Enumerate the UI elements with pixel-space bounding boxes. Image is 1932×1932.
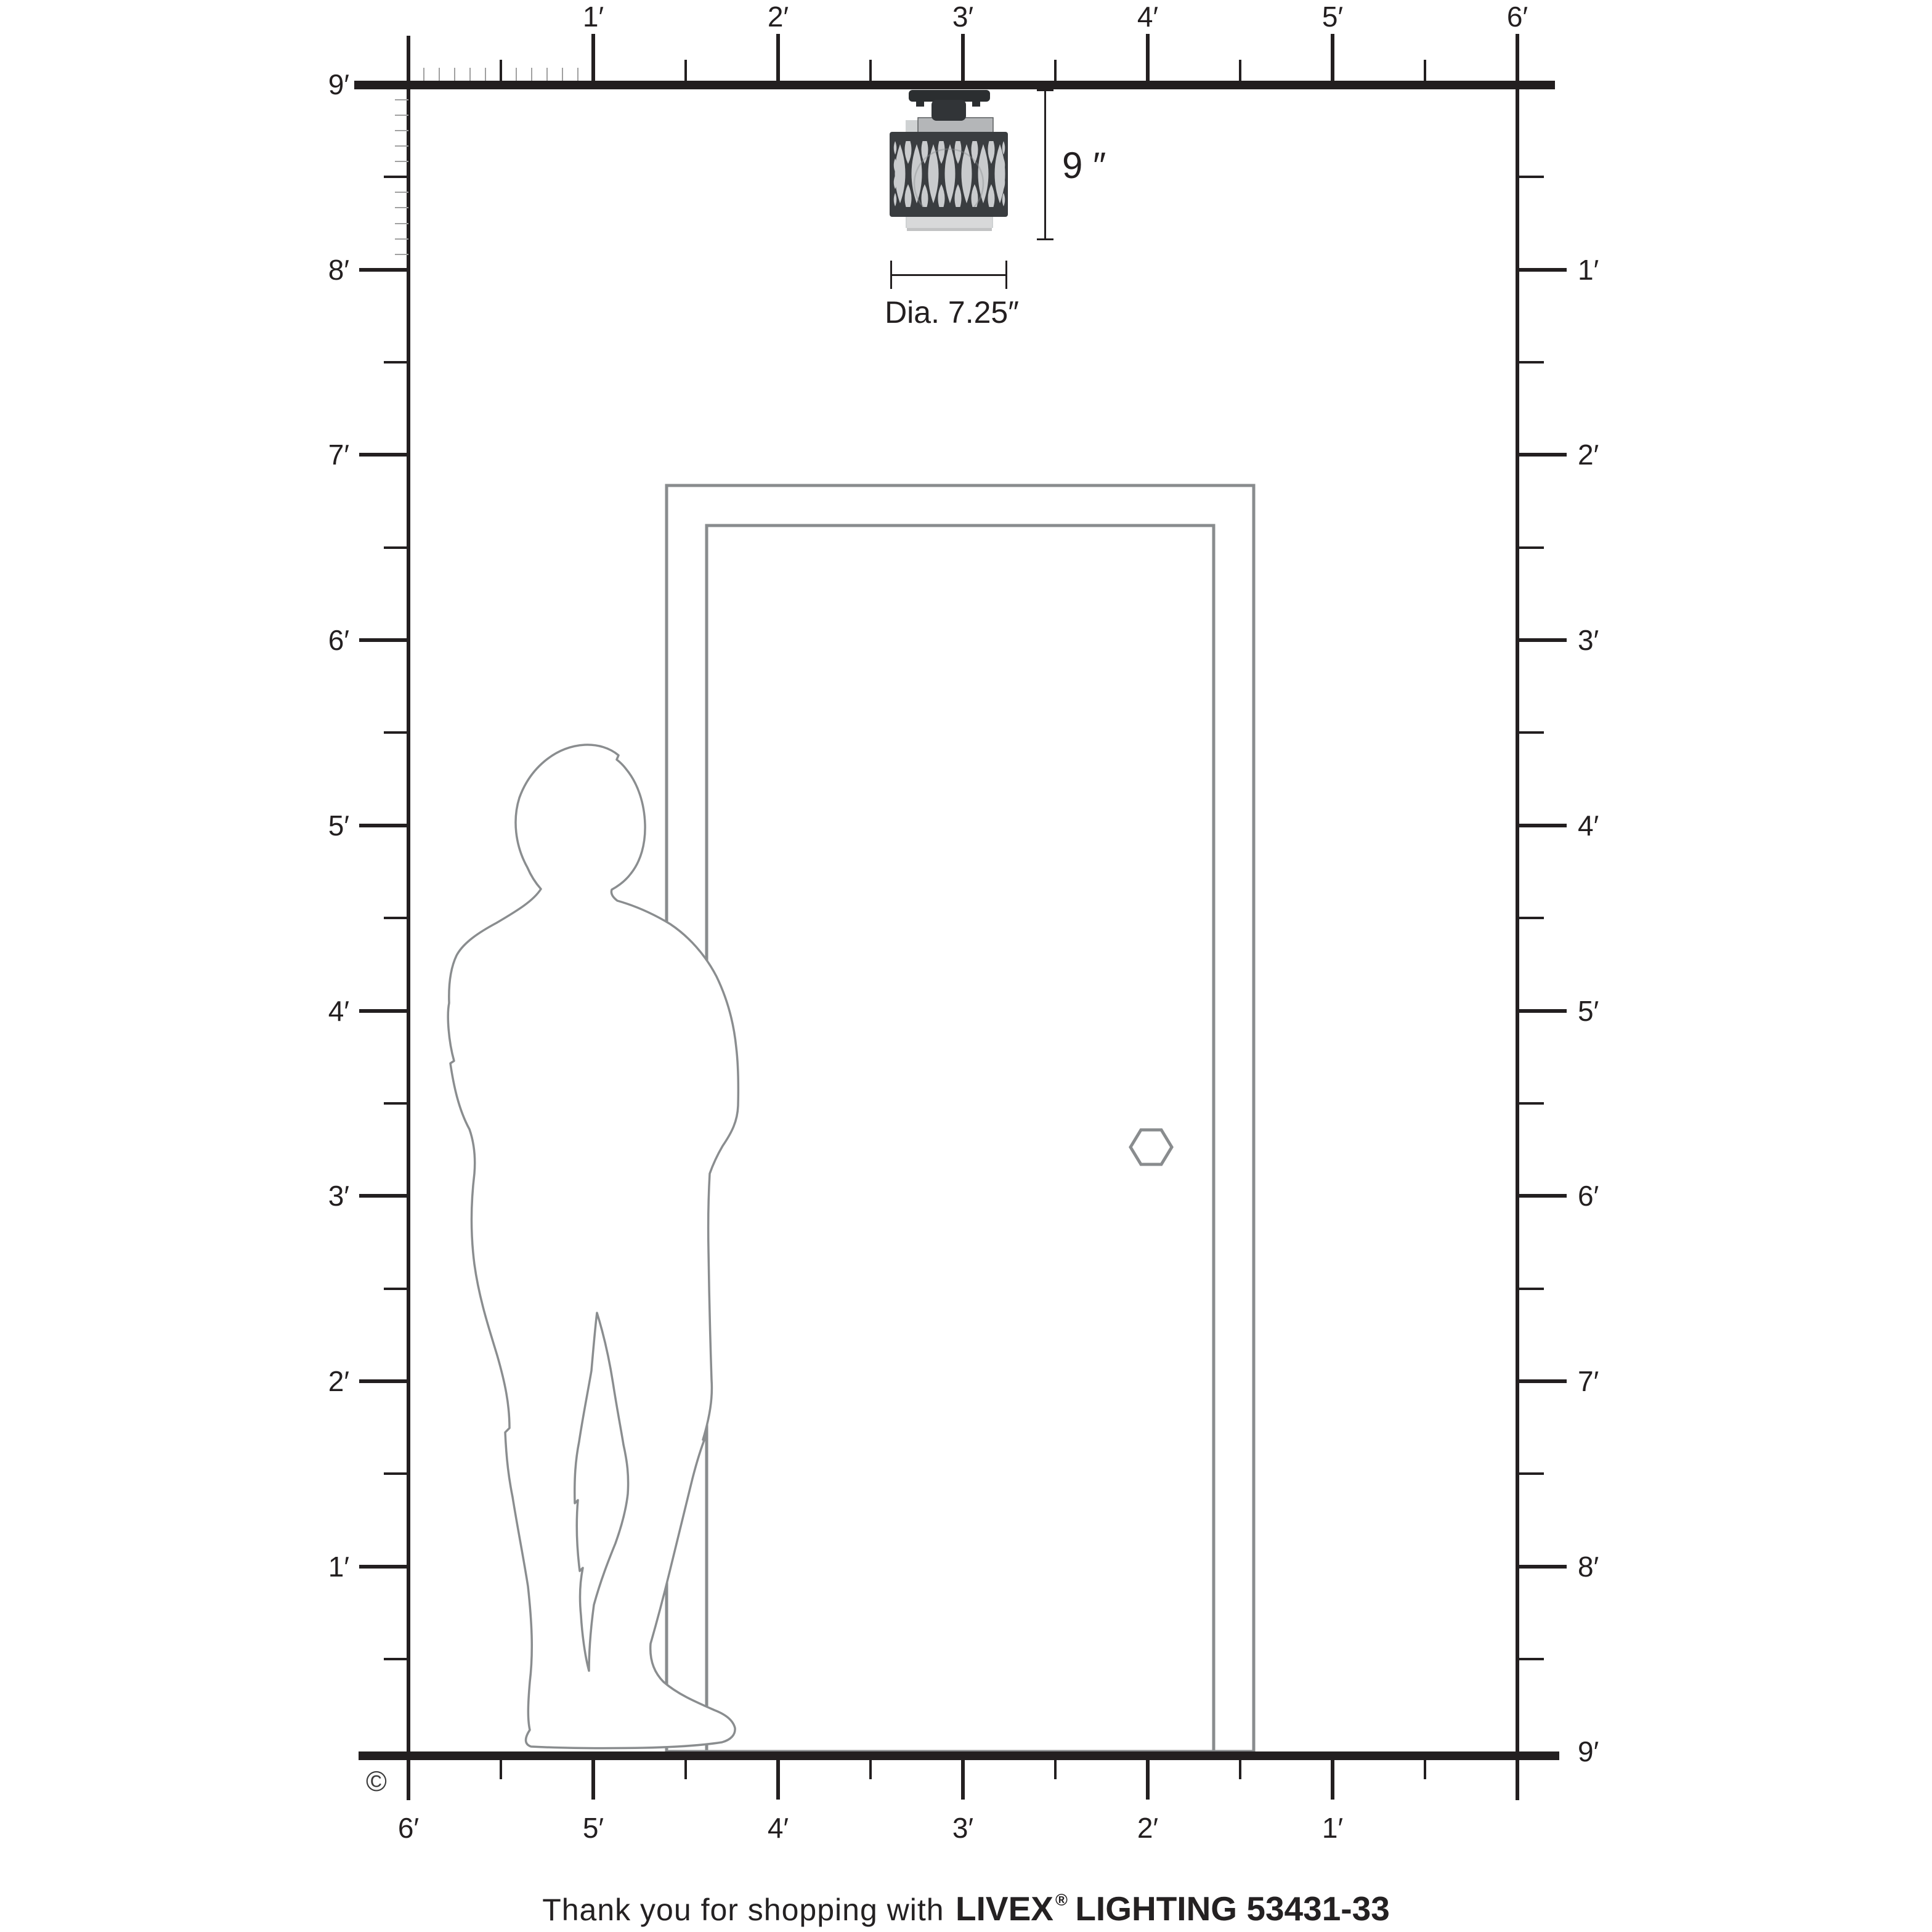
ruler-label: 3′ — [926, 0, 1000, 33]
ruler-label: 6′ — [238, 623, 349, 657]
ruler-tick — [562, 68, 563, 81]
ruler-tick — [454, 68, 455, 81]
ruler-tick — [1516, 34, 1519, 81]
height-dimension-cap-top — [1037, 89, 1053, 91]
ruler-tick — [384, 1658, 408, 1660]
ruler-tick — [359, 1379, 408, 1383]
door-outline — [667, 485, 1254, 1751]
diameter-dimension-label: Dia. 7.25″ — [850, 294, 1053, 330]
ruler-label: 5′ — [556, 1811, 630, 1845]
ruler-tick — [395, 161, 408, 162]
height-dimension-line — [1044, 89, 1046, 240]
ceiling-beam — [354, 81, 1555, 89]
ruler-tick — [384, 361, 408, 363]
ruler-tick — [1239, 1760, 1241, 1779]
ruler-tick — [684, 1760, 687, 1779]
ruler-tick — [1517, 268, 1567, 272]
ruler-label: 5′ — [1578, 994, 1689, 1028]
ruler-label: 7′ — [238, 438, 349, 471]
ruler-tick — [359, 1009, 408, 1013]
ruler-tick — [500, 1760, 502, 1779]
ruler-label: 4′ — [238, 994, 349, 1028]
ruler-label: 2′ — [1111, 1811, 1185, 1845]
ruler-tick — [1517, 638, 1567, 642]
height-dimension-label: 9 ″ — [1062, 144, 1106, 187]
ruler-label: 1′ — [238, 1550, 349, 1583]
ruler-tick — [384, 176, 408, 178]
ruler-tick — [384, 1288, 408, 1290]
ruler-tick — [1517, 1472, 1544, 1475]
ruler-tick — [1517, 1009, 1567, 1013]
ruler-label: 3′ — [238, 1179, 349, 1212]
ruler-label: 7′ — [1578, 1365, 1689, 1398]
ruler-tick — [684, 60, 687, 81]
fixture-glass-bottom-edge — [907, 228, 992, 231]
ruler-tick — [1517, 1565, 1567, 1569]
ruler-label: 5′ — [238, 809, 349, 842]
ruler-tick — [1517, 1288, 1544, 1290]
ruler-tick — [395, 238, 408, 240]
footer-brand-name: LIVEX — [956, 1889, 1053, 1928]
fixture-canopy-peg-left — [916, 101, 924, 107]
diameter-dimension-cap-left — [890, 261, 892, 289]
ruler-tick — [359, 824, 408, 827]
floor-beam — [359, 1751, 1559, 1760]
diameter-dimension-cap-right — [1005, 261, 1007, 289]
size-diagram-canvas: 1′2′3′4′5′6′9′8′7′6′5′4′3′2′1′1′2′3′4′5′… — [0, 0, 1932, 1932]
ruler-label: 3′ — [926, 1811, 1000, 1845]
ruler-tick — [516, 68, 517, 81]
ruler-label: 6′ — [1480, 0, 1554, 33]
height-dimension-cap-bottom — [1037, 238, 1053, 240]
ruler-tick — [1517, 1658, 1544, 1660]
ruler-tick — [359, 1194, 408, 1198]
ruler-tick — [500, 60, 502, 81]
ruler-label: 2′ — [1578, 438, 1689, 471]
ruler-tick — [384, 731, 408, 734]
ruler-tick — [359, 453, 408, 457]
copyright-symbol: © — [366, 1764, 387, 1798]
ruler-label: 4′ — [1578, 809, 1689, 842]
ruler-tick — [485, 68, 486, 81]
footer-thankyou-text: Thank you for shopping with — [542, 1893, 944, 1927]
ruler-label: 9′ — [238, 68, 349, 101]
ruler-tick — [1331, 1760, 1334, 1800]
ruler-label: 5′ — [1296, 0, 1370, 33]
ruler-tick — [1517, 1379, 1567, 1383]
ruler-tick — [546, 68, 548, 81]
ruler-tick — [384, 917, 408, 919]
ruler-label: 8′ — [1578, 1550, 1689, 1583]
ruler-tick — [395, 115, 408, 116]
ruler-tick — [359, 268, 408, 272]
fixture-neck — [931, 100, 966, 121]
ruler-tick — [1517, 176, 1544, 178]
door-knob-icon — [1130, 1130, 1172, 1164]
ruler-label: 4′ — [1111, 0, 1185, 33]
ruler-tick — [961, 34, 965, 81]
ruler-tick — [776, 34, 780, 81]
ruler-tick — [423, 68, 424, 81]
ruler-tick — [1054, 60, 1057, 81]
ruler-tick — [1517, 453, 1567, 457]
ruler-label: 6′ — [371, 1811, 445, 1845]
ruler-label: 1′ — [1578, 253, 1689, 286]
diameter-dimension-line — [890, 274, 1007, 276]
ruler-tick — [395, 207, 408, 208]
ruler-tick — [395, 192, 408, 193]
ruler-tick — [869, 60, 872, 81]
ruler-label: 1′ — [1296, 1811, 1370, 1845]
ruler-tick — [395, 99, 408, 100]
ruler-tick — [1517, 1102, 1544, 1105]
ruler-tick — [384, 1472, 408, 1475]
ruler-tick — [1517, 917, 1544, 919]
ruler-tick — [1517, 731, 1544, 734]
ruler-label: 2′ — [741, 0, 815, 33]
ruler-tick — [1424, 1760, 1426, 1779]
ruler-tick — [1424, 60, 1426, 81]
ruler-tick — [395, 254, 408, 255]
ruler-tick — [961, 1760, 965, 1800]
ruler-tick — [439, 68, 440, 81]
ruler-tick — [1517, 546, 1544, 549]
ceiling-light-fixture-icon — [890, 90, 1008, 231]
ruler-tick — [395, 130, 408, 131]
ruler-label: 6′ — [1578, 1179, 1689, 1212]
ruler-tick — [1517, 361, 1544, 363]
ruler-tick — [395, 145, 408, 147]
fixture-canopy-peg-right — [972, 101, 980, 107]
footer-model-number: LIGHTING 53431-33 — [1075, 1889, 1389, 1928]
ruler-tick — [384, 546, 408, 549]
ruler-tick — [1331, 34, 1334, 81]
ruler-label: 3′ — [1578, 623, 1689, 657]
registered-trademark-icon: ® — [1055, 1891, 1068, 1909]
ruler-tick — [1146, 34, 1150, 81]
ruler-tick — [1517, 1194, 1567, 1198]
ruler-tick — [591, 1760, 595, 1800]
ruler-label: 1′ — [556, 0, 630, 33]
ruler-tick — [776, 1760, 780, 1800]
ruler-tick — [359, 638, 408, 642]
ruler-tick — [1054, 1760, 1057, 1779]
ruler-tick — [469, 68, 471, 81]
ruler-tick — [531, 68, 532, 81]
ruler-label: 9′ — [1578, 1735, 1689, 1768]
ruler-tick — [1146, 1760, 1150, 1800]
scene-graphics — [0, 0, 1932, 1932]
ruler-tick — [591, 34, 595, 81]
ruler-label: 8′ — [238, 253, 349, 286]
ruler-tick — [869, 1760, 872, 1779]
ruler-tick — [1239, 60, 1241, 81]
ruler-tick — [384, 1102, 408, 1105]
ruler-tick — [1517, 824, 1567, 827]
ruler-tick — [359, 1565, 408, 1569]
ruler-label: 2′ — [238, 1365, 349, 1398]
ruler-tick — [395, 223, 408, 224]
ruler-label: 4′ — [741, 1811, 815, 1845]
footer-text: Thank you for shopping with LIVEX® LIGHT… — [0, 1889, 1932, 1928]
ruler-tick — [577, 68, 578, 81]
